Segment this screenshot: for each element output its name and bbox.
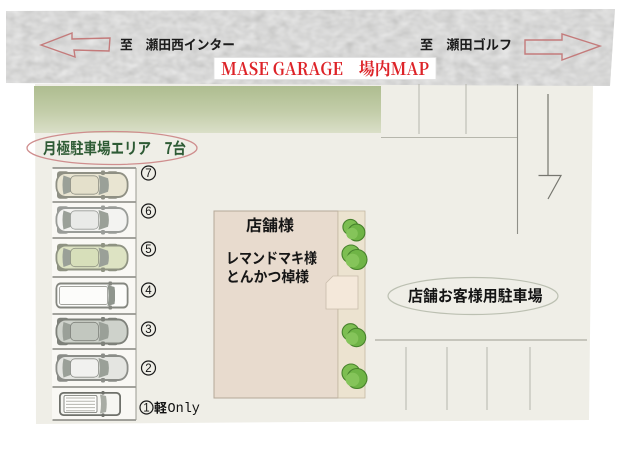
svg-text:2: 2 [145, 363, 151, 375]
svg-text:6: 6 [145, 206, 151, 218]
svg-text:1: 1 [143, 403, 149, 415]
svg-text:7: 7 [145, 168, 151, 180]
svg-text:Only: Only [168, 402, 200, 417]
svg-text:5: 5 [145, 244, 151, 256]
svg-text:3: 3 [145, 324, 151, 336]
svg-text:4: 4 [145, 285, 152, 297]
